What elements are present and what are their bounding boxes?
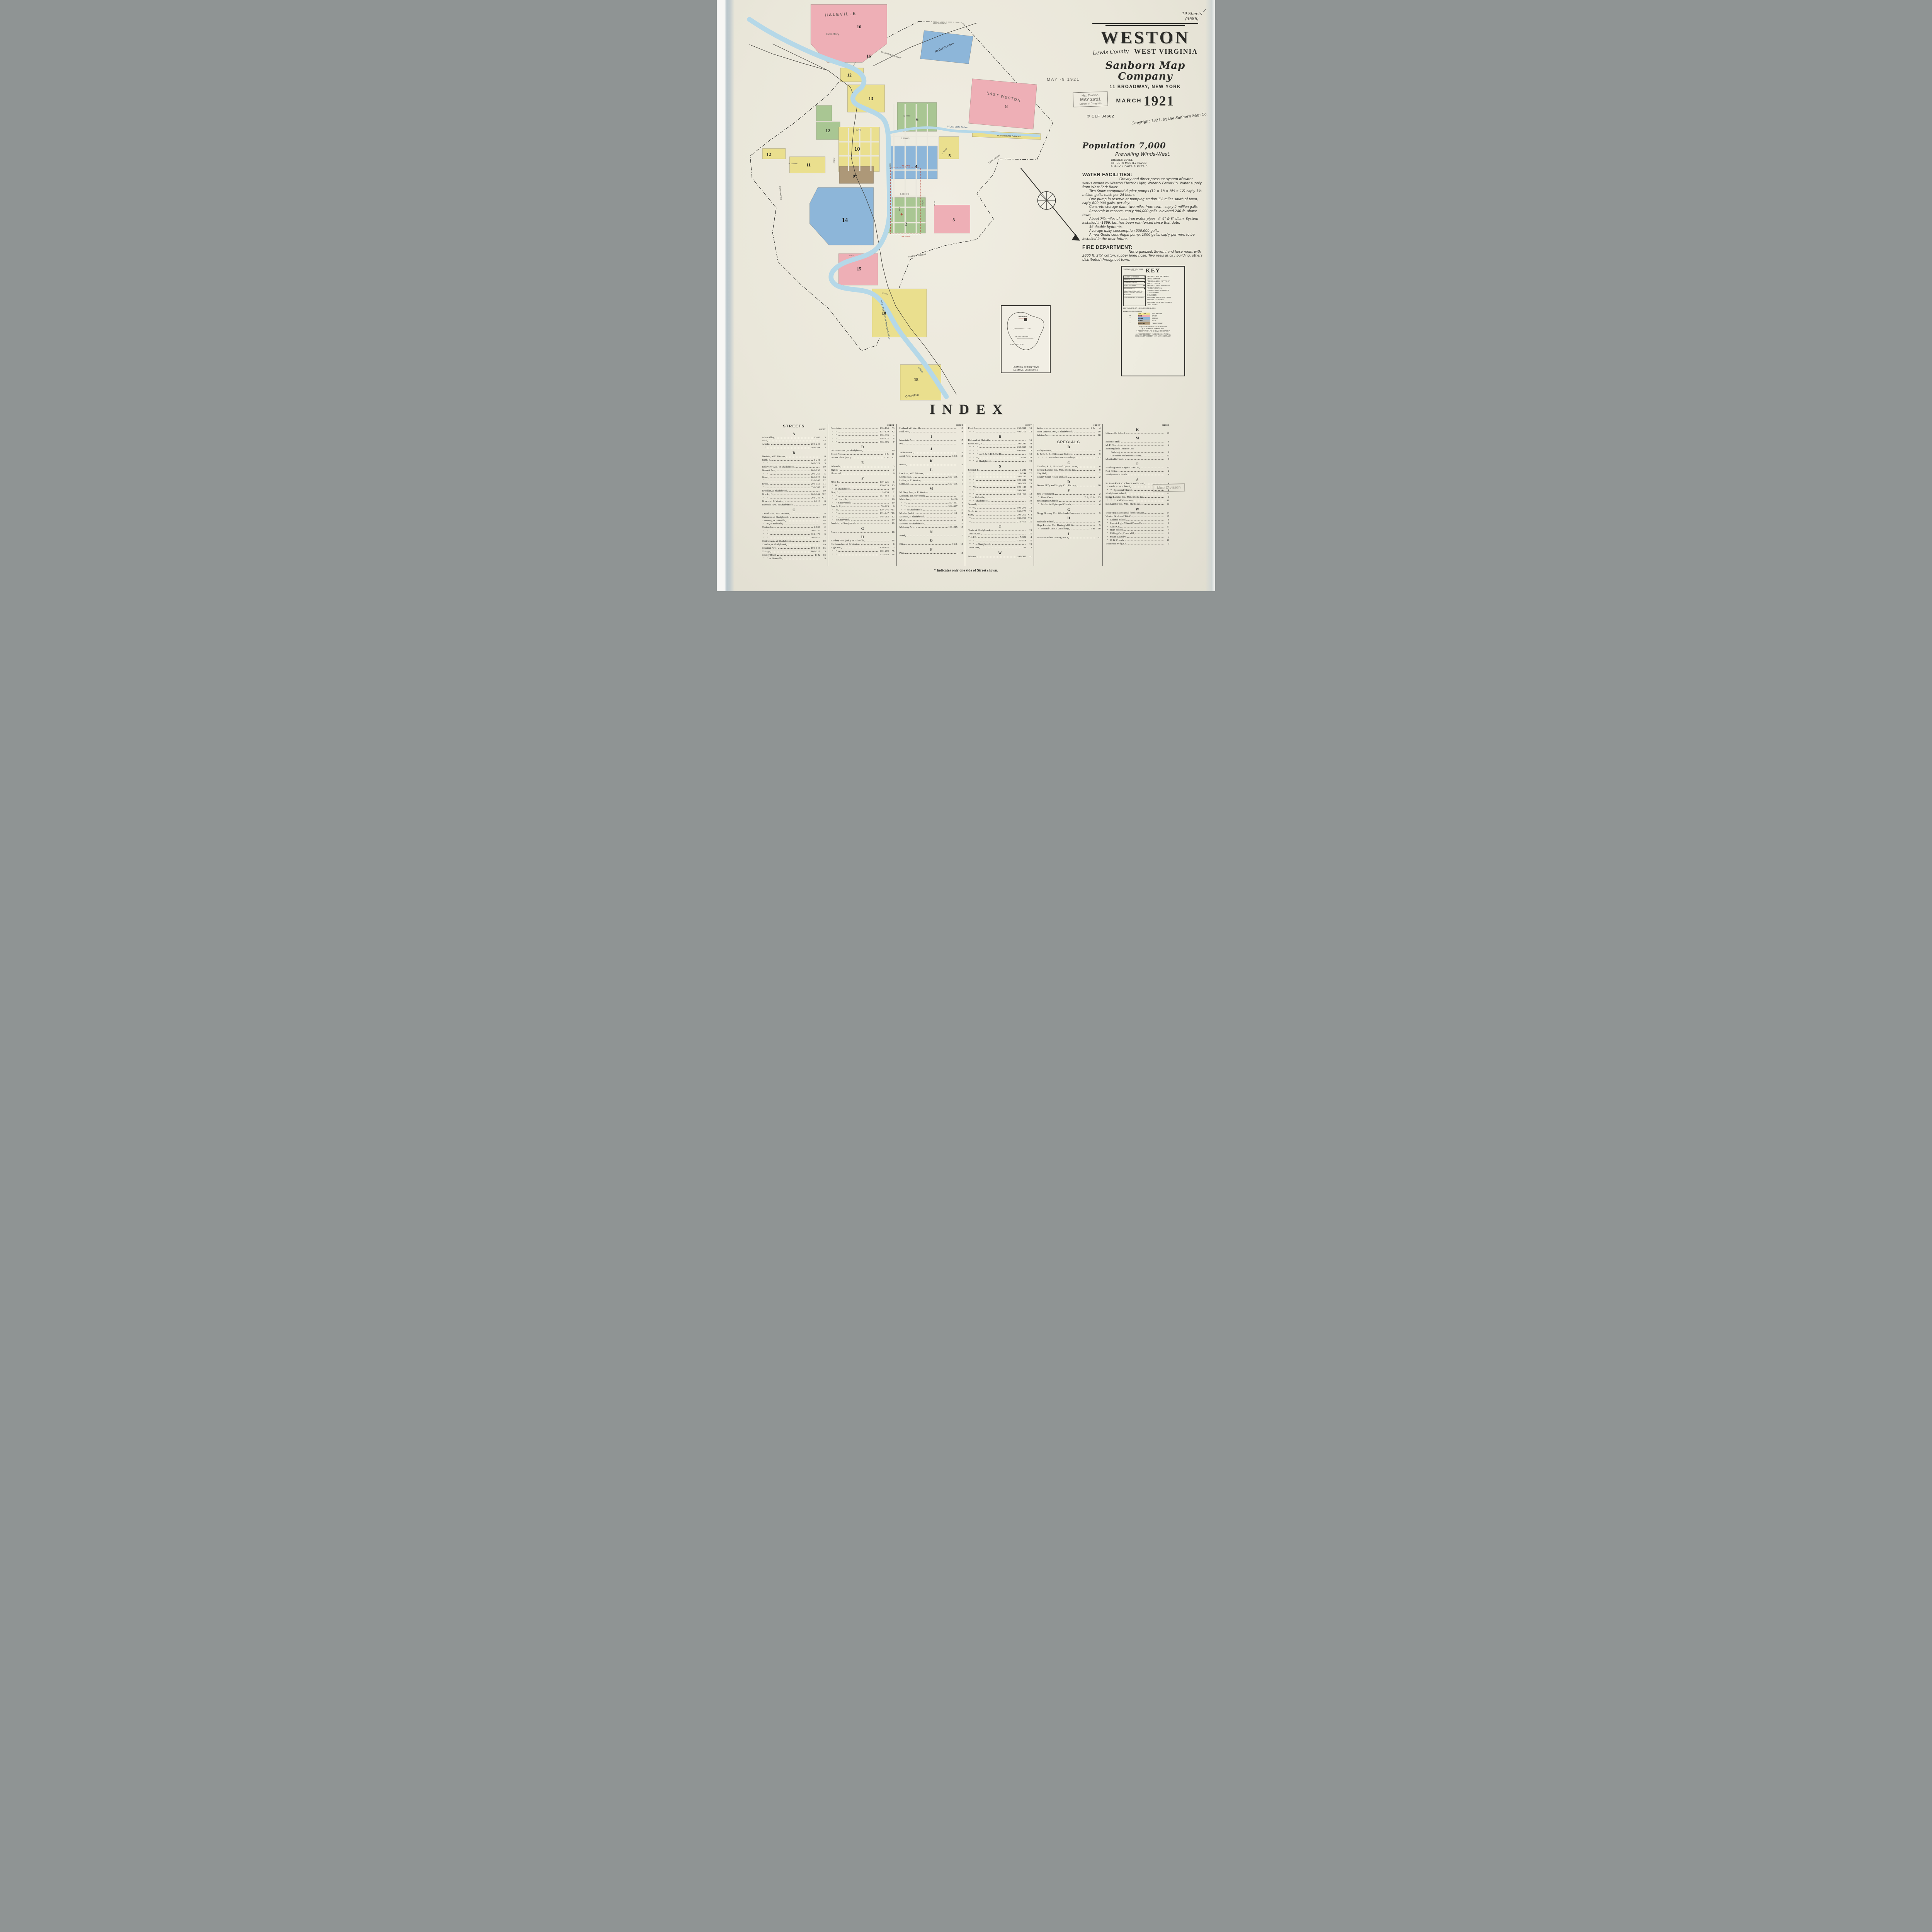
entry-name: Shadybrook School,	[1105, 492, 1126, 496]
index-entry: Lynn Ave.,600–675 7	[900, 483, 963, 486]
dotted-leader	[1074, 454, 1095, 455]
map-division-stamp: Map Division	[1153, 483, 1185, 492]
entry-name: Banister, at E. Weston,	[762, 455, 786, 459]
dotted-leader	[980, 548, 1021, 548]
dotted-leader	[1142, 456, 1163, 456]
entry-name: Bailey House,	[1037, 449, 1051, 453]
entry-sheet-number: 18	[958, 442, 963, 446]
index-entry: Third E.,7–324 4	[968, 536, 1032, 539]
map-label: BLAND	[856, 129, 861, 131]
entry-sheet-number: 6	[1164, 440, 1169, 444]
index-entry: Seventh,7	[968, 503, 1032, 507]
entry-name: Masonic Hall,	[1105, 440, 1120, 444]
dotted-leader	[772, 460, 813, 461]
entry-name: West Virginia Hospital for the Insane,	[1105, 512, 1145, 515]
key-symbol-cell: STEAM BOILER▮	[1124, 287, 1145, 290]
entry-number-range: 12 &	[952, 455, 958, 458]
entry-number-range: 1–236	[882, 491, 889, 495]
entry-sheet-number: 2	[958, 498, 963, 502]
entry-name: “ Glass Co.,	[1105, 526, 1121, 529]
dotted-leader	[796, 467, 820, 468]
dotted-leader	[979, 512, 1016, 512]
map-label: CORPORATION	[933, 22, 947, 25]
entry-name: Court Ave.,	[831, 427, 843, 430]
entry-sheet-number: 17	[1164, 526, 1169, 529]
index-entry: Edwards,3	[831, 465, 895, 469]
key-color-legend: BUILDINGS COLORED YELLOWARE FRAME“ “REDB…	[1123, 310, 1183, 325]
index-entry: “ Hose Carts,7, 9, 13 & 15	[1037, 496, 1100, 500]
map-label: FIRE LIMITS	[901, 165, 910, 167]
key-symbol-cell: COUNTING FROM LEFT TO RIGHT LOOKING TOWA…	[1124, 290, 1145, 296]
entry-sheet-number: 12	[821, 486, 826, 490]
dotted-leader	[980, 458, 1020, 458]
entry-number-range: 101–247	[880, 512, 889, 515]
sheet-column-label: SHEET	[762, 429, 826, 431]
dotted-leader	[1145, 513, 1163, 514]
dotted-leader	[840, 493, 881, 493]
entry-sheet-number: 9	[1164, 543, 1169, 546]
index-entry: Bailey House,4	[1037, 449, 1100, 453]
dotted-leader	[984, 444, 1016, 444]
entry-number-range: 200–355	[811, 483, 821, 486]
index-entry: “ “325–514 5	[968, 539, 1032, 543]
edition-month: MARCH	[1116, 97, 1142, 104]
index-entry: “ W.,100–185 9	[968, 486, 1032, 489]
dotted-leader	[769, 464, 810, 464]
sheet-column-label: SHEET	[1105, 425, 1169, 427]
water-facilities-heading: WATER FACILITIES:	[1082, 172, 1204, 177]
entry-name: Franklin, at Shadybrook,	[831, 522, 857, 526]
entry-name: Monongahela Traction Co.:	[1105, 447, 1134, 451]
index-entry: B. & O. R. R., Office and Stations,9	[1037, 453, 1100, 456]
dotted-leader	[1128, 544, 1163, 544]
index-section-letter: C	[1037, 461, 1100, 465]
entry-name: “ “	[831, 441, 837, 444]
dotted-leader	[774, 495, 810, 495]
dotted-leader	[1121, 527, 1163, 527]
key-color-rows: YELLOWARE FRAME“ “REDBRICK“ “BLUESTONE“ …	[1123, 313, 1183, 325]
entry-sheet-number: 3	[821, 446, 826, 450]
dotted-leader	[776, 438, 813, 438]
dotted-leader	[769, 531, 810, 531]
entry-number-range: 242–329	[811, 462, 821, 466]
index-entry: “ “ at Deanville,9	[762, 557, 826, 561]
dotted-leader	[906, 544, 951, 545]
index-entry: “ “200–361 11	[968, 489, 1032, 493]
index-section-letter: S	[968, 464, 1032, 468]
entry-name: Gregg Grocery Co., Wholesale Groceries,	[1037, 512, 1080, 515]
index-section-letter: K	[900, 459, 963, 463]
entry-number-range: 400–715	[1017, 430, 1027, 434]
dotted-leader	[979, 451, 1016, 451]
entry-sheet-number: 9	[1095, 453, 1100, 456]
sheet-number: 10	[854, 146, 860, 152]
dotted-leader	[843, 429, 879, 429]
index-entry: Hull Ave.,18	[900, 430, 963, 434]
entry-sheet-number: 11	[1164, 499, 1169, 503]
entry-sheet-number: *3	[1027, 479, 1032, 482]
key-footer-line: CONSECUTIVE STREET NO'S ARE ARBITRARY	[1123, 335, 1183, 337]
entry-number-range: 100–217	[811, 550, 821, 554]
index-entry: “ “ “250–363 10	[968, 446, 1032, 449]
entry-sheet-number: 11	[889, 453, 895, 456]
entry-sheet-number: 18	[958, 463, 963, 467]
index-entry: River Ave., N.,200–249 9	[968, 442, 1032, 446]
entry-sheet-number: 14	[1164, 512, 1169, 515]
map-label: E. FIFTH	[903, 115, 910, 117]
publisher-name: Sanborn Map Company	[1082, 60, 1208, 82]
entry-sheet-number: *4	[889, 553, 895, 557]
dotted-leader	[1127, 494, 1163, 494]
index-entry: Bland,100–125 10	[762, 476, 826, 480]
index-entry: Broad,200–355 11	[762, 483, 826, 486]
entry-sheet-number: 11	[821, 483, 826, 486]
index-entry: Kitsonville School,18	[1105, 432, 1169, 435]
index-entry: Monticello Hotel,9	[1105, 458, 1169, 461]
entry-sheet-number: 13	[1027, 449, 1032, 453]
entry-sheet-number: 12	[889, 515, 895, 519]
entry-number-range: 506–675	[811, 536, 821, 540]
index-entry: “ “336–475 6	[831, 437, 895, 441]
index-entry: “ “ at Shadybrook,19	[968, 460, 1032, 463]
entry-name: Brown, at E. Weston,	[762, 500, 784, 503]
entry-number-range: 212–415	[1017, 520, 1027, 524]
entry-sheet-number: 16	[1095, 520, 1100, 524]
dotted-leader	[789, 491, 820, 492]
index-entry: Building,4	[1105, 451, 1169, 454]
entry-name: Harding Ave. (arb.), at Haleville,	[831, 539, 865, 543]
index-entry: Presbyterian Church,4	[1105, 473, 1169, 477]
entry-name: “ “ “ Oil Warehouse,	[1105, 499, 1133, 503]
entry-sheet-number: 4	[1164, 444, 1169, 447]
index-entry: “201–211 *15	[968, 517, 1032, 520]
dotted-leader	[1070, 538, 1095, 538]
entry-name: County Road,	[762, 554, 776, 557]
index-entry: “ “200–265 5	[762, 473, 826, 476]
dotted-leader	[978, 537, 1019, 538]
entry-number-range: 400–835	[1017, 449, 1027, 453]
entry-sheet-number: 18	[1027, 456, 1032, 460]
entry-name: Interstate Ave.,	[900, 439, 915, 442]
dotted-leader	[793, 541, 820, 542]
entry-name: “ W.,	[831, 509, 839, 512]
index-section-letter: O	[900, 539, 963, 543]
dotted-leader	[1081, 514, 1095, 514]
entry-name: Arch,	[762, 439, 768, 443]
entry-sheet-number: 18	[958, 552, 963, 555]
map-label: E. SECOND	[900, 193, 910, 195]
entry-sheet-number: 19	[889, 502, 895, 505]
entry-number-range: 1–241	[813, 459, 820, 462]
index-entry: Brown, at E. Weston,1–210 8	[762, 500, 826, 503]
entry-name: B. & O. R. R., Office and Stations,	[1037, 453, 1073, 456]
entry-sheet-number: 4	[821, 529, 826, 533]
entry-sheet-number: 9	[1095, 469, 1100, 472]
entry-number-range: 200–270	[880, 550, 889, 553]
key-stable-note: ⊠ STABLE (C.B.) = CONCRETE BLOCK	[1123, 307, 1183, 310]
index-column-3: SHEETHolland, at Haleville,16Hull Ave.,1…	[896, 424, 965, 566]
index-entry: Jackson Ave.,18	[900, 451, 963, 455]
entry-sheet-number: 7	[1027, 503, 1032, 507]
entry-name: Presbyterian Church,	[1105, 473, 1127, 477]
entry-name: Minden (arb.),	[900, 512, 915, 515]
publisher-address: 11 BROADWAY, NEW YORK	[1082, 85, 1208, 89]
entry-name: “ “	[968, 479, 974, 482]
entry-number-range: 100–275	[1017, 507, 1027, 510]
index-entry: City Hall,2	[1037, 472, 1100, 476]
entry-name: Minnich, at Shadybrook,	[900, 515, 925, 519]
entry-sheet-number: 19	[889, 522, 895, 526]
entry-sheet-number: 5	[1095, 524, 1100, 527]
entry-number-range: 9 &	[885, 453, 889, 456]
sheets-note: 19 Sheets (3686) ✓	[1182, 12, 1202, 22]
index-column-2: SHEETCourt Ave.,100–164 *3 “ “101–179 *2…	[828, 424, 896, 566]
entry-sheet-number: 10	[1027, 427, 1032, 430]
index-entry: Second, E.,1–241 *4	[968, 469, 1032, 472]
dotted-leader	[767, 448, 810, 448]
dotted-leader	[1077, 470, 1095, 471]
entry-name: Seventh,	[968, 503, 977, 507]
entry-name: Alum Alley,	[762, 436, 775, 440]
index-entry: County Court House and Jail,2	[1037, 476, 1100, 479]
dotted-leader	[769, 538, 810, 538]
entry-number-range: 1–180	[951, 498, 958, 502]
entry-number-range: 10 &	[883, 456, 889, 460]
dotted-leader	[975, 494, 1016, 495]
index-entry: “ “101–247 *10	[831, 512, 895, 515]
entry-sheet-number: 4	[1164, 473, 1169, 477]
dotted-leader	[1119, 471, 1163, 472]
dotted-leader	[1143, 504, 1163, 505]
entry-sheet-number: 8	[958, 472, 963, 476]
entry-name: Kitson,	[900, 463, 907, 467]
entry-number-range: 201–211	[1017, 517, 1027, 520]
clf-number: © CLF 34662	[1087, 114, 1114, 119]
index-entry: “210–245 12	[762, 479, 826, 483]
index-entry: “ “200–270 *5	[831, 550, 895, 553]
entry-name: Madison, at Shadybrook,	[900, 495, 925, 498]
dotted-leader	[905, 553, 957, 554]
entry-name: Danser M'f'g and Supply Co., Factory,	[1037, 484, 1077, 488]
entry-name: Mulberry Ave.,	[900, 526, 915, 529]
index-section-letter: M	[900, 487, 963, 491]
sheet-number: (3686)	[1182, 17, 1202, 22]
entry-sheet-number: *15	[1027, 517, 1032, 520]
entry-sheet-number: 19	[821, 516, 826, 519]
dotted-leader	[770, 484, 810, 485]
dotted-leader	[842, 507, 880, 507]
entry-number-range: 200–244	[811, 493, 821, 497]
index-entry: Railroad, at Haleville,16	[968, 439, 1032, 442]
entry-name: City Hall,	[1037, 472, 1047, 476]
index-section-letter: P	[900, 548, 963, 551]
dotted-leader	[925, 524, 957, 524]
entry-number-range: 325–514	[1017, 539, 1027, 543]
index-column-6: SHEETKKitsonville School,18MMasonic Hall…	[1102, 424, 1171, 566]
dotted-leader	[912, 500, 950, 500]
entry-number-range: 50–85	[813, 436, 820, 440]
entry-sheet-number: 3	[889, 546, 895, 550]
index-entry: West Virginia Ave., at Shadybrook,19	[1037, 430, 1100, 434]
entry-sheet-number: 19	[889, 449, 895, 453]
entry-sheet-number: *5	[1027, 482, 1032, 486]
entry-sheet-number: 6	[889, 481, 895, 484]
dotted-leader	[1003, 454, 1026, 455]
entry-sheet-number: 4	[1027, 536, 1032, 539]
index-section-letter: H	[1037, 516, 1100, 520]
index-entry: Monroe, at Shadybrook,19	[900, 522, 963, 526]
index-entry: Haleville School,16	[1037, 520, 1100, 524]
index-entry: Charles, at Shadybrook,19	[762, 543, 826, 547]
dotted-leader	[1128, 475, 1163, 475]
dotted-leader	[769, 498, 810, 498]
sheet-number: 3	[952, 218, 955, 223]
entry-name: Eighth,	[831, 469, 838, 472]
index-entry: Holland, at Haleville,16	[900, 427, 963, 430]
entry-sheet-number: 8	[958, 479, 963, 483]
key-line: “ 2ND & 4TH “	[1147, 304, 1183, 306]
index-entry: Sixth, W.,100–275 13	[968, 510, 1032, 514]
dotted-leader	[852, 503, 889, 503]
index-entry: Delaware Ave., at Shadybrook,19	[831, 449, 895, 453]
index-section-letter: L	[900, 468, 963, 472]
entry-sheet-number: 5	[821, 473, 826, 476]
utility-note: GRADES LEVEL	[1111, 159, 1204, 162]
index-entry: “ “ “400–835 13	[968, 449, 1032, 453]
entry-name: “ “	[762, 533, 768, 536]
dotted-leader	[839, 486, 879, 486]
map-label: BALTIMORE & OHIO R.R.	[881, 51, 902, 60]
index-column-5: SHEETWater,2 & 4West Virginia Ave., at S…	[1034, 424, 1102, 566]
entry-name: “ at Shadybrook,	[831, 488, 851, 491]
entry-name: Detroit Place (arb.),	[831, 456, 851, 460]
index-entry: State,200–210 *14	[968, 514, 1032, 517]
sheet-number: 15	[857, 267, 861, 272]
entry-name: “ “	[900, 502, 906, 505]
index-entry: Bank, E.,1–241 2	[762, 459, 826, 462]
entry-name: Arnold,	[762, 443, 770, 446]
entry-sheet-number: 5	[1027, 539, 1032, 543]
entry-sheet-number: 13	[889, 484, 895, 488]
entry-sheet-number: 4	[1095, 503, 1100, 507]
entry-name: “ “	[968, 430, 974, 434]
entry-name: “ at Haleville,	[968, 496, 985, 500]
dotted-leader	[1074, 432, 1095, 432]
entry-sheet-number: 6	[889, 472, 895, 476]
index-entry: “ Colored School,6	[1105, 519, 1169, 522]
info-paragraph: Concrete storage dam, two miles from tow…	[1082, 205, 1204, 209]
district-sheet-3	[934, 205, 970, 233]
dotted-leader	[977, 487, 1016, 488]
entry-sheet-number: 11	[1164, 539, 1169, 543]
index-entry: Minden (arb.),11 & 12	[900, 512, 963, 515]
entry-name: Cemetery, at Haleville,	[762, 519, 786, 523]
dotted-leader	[926, 496, 957, 497]
map-label: COURT	[922, 200, 923, 206]
entry-name: “ “	[968, 482, 974, 486]
dotted-leader	[787, 521, 820, 521]
entry-name: Pratt Ave.,	[968, 427, 979, 430]
index-entry: Interstate Ave.,17	[900, 439, 963, 442]
dotted-leader	[986, 498, 1026, 498]
entry-name: Burnside Ave., at Shadybrook,	[762, 503, 794, 507]
dotted-leader	[857, 524, 888, 524]
index-entry: “ W.,100–275 13	[968, 507, 1032, 510]
entry-sheet-number: 17	[958, 439, 963, 442]
dotted-leader	[785, 502, 813, 502]
dotted-leader	[1143, 524, 1163, 524]
index-entry: Sun Lumber Co., Mill, Sheds, &c.,10	[1105, 503, 1169, 506]
dotted-leader	[906, 507, 948, 507]
entry-number-range: 336–475	[880, 437, 889, 441]
index-section-letter: G	[831, 527, 895, 531]
entry-sheet-number: 13	[1027, 510, 1032, 514]
dotted-leader	[776, 527, 813, 528]
entry-sheet-number: 3	[821, 550, 826, 554]
entry-sheet-number: 13	[1027, 507, 1032, 510]
index-entry: Warren,200–361 11	[968, 555, 1032, 559]
index-entry: County Road,17 & 18	[762, 554, 826, 557]
index-entry: Detroit Place (arb.),10 & 12	[831, 456, 895, 460]
entry-name: Bank, E.,	[762, 459, 772, 462]
sheets-count: 19 Sheets	[1182, 12, 1202, 17]
entry-number-range: 200–330	[811, 529, 821, 533]
entry-name: “ Paul's A. M. Church,	[1105, 485, 1131, 489]
key-cell-label: SHINGLE ROOF	[1124, 279, 1135, 281]
index-entry: “ “242–329 3	[762, 462, 826, 466]
dotted-leader	[1134, 501, 1163, 501]
entry-name: State,	[968, 514, 974, 517]
dotted-leader	[838, 432, 879, 432]
entry-number-range: 201–263	[880, 553, 889, 557]
dotted-leader	[971, 519, 1017, 519]
index-entry: “ “201–245 *11	[762, 497, 826, 500]
entry-name: Belleview Ave., at Shadybrook,	[762, 466, 795, 469]
sheet-column-label: SHEET	[831, 425, 895, 427]
entry-name: “ Hose Carts,	[1037, 496, 1053, 500]
dotted-leader	[1126, 434, 1163, 434]
dotted-leader	[838, 514, 879, 514]
index-entry: “ ElectricLight,Water&PowerCo.2	[1105, 522, 1169, 526]
dotted-leader	[866, 541, 889, 541]
entry-name: Post Office,	[1105, 470, 1118, 473]
entry-sheet-number: 19	[821, 543, 826, 547]
entry-name: Winter Ave.,	[1037, 434, 1050, 437]
entry-number-range: 100–215	[948, 526, 958, 529]
entry-sheet-number: 19	[1027, 543, 1032, 546]
entry-name: “ “ S.,	[968, 456, 979, 460]
entry-name: “	[762, 479, 764, 483]
entry-number-range: 100–246	[880, 509, 889, 512]
entry-sheet-number: 19	[1164, 454, 1169, 458]
index-entry: “ “201–263 *4	[831, 553, 895, 557]
index-entry: Loftus, at E. Weston,8	[900, 479, 963, 483]
entry-name: Cottage,	[762, 550, 770, 554]
entry-name: “ “	[831, 434, 837, 437]
water-facilities-text: Gravity and direct pressure system of wa…	[1082, 177, 1204, 241]
index-entry: “ Natural Gas Co., Buildings,9 & 10	[1037, 527, 1100, 531]
dotted-leader	[1078, 467, 1095, 467]
entry-name: Pike,	[900, 552, 905, 555]
entry-name: Brooks, E.,	[762, 493, 774, 497]
entry-number-range: 600–675	[948, 476, 958, 479]
index-entry: Tenth, at Shadybrook,19	[968, 529, 1032, 532]
index-section-letter: I	[1037, 532, 1100, 536]
entry-name: Chestnut Ave.,	[762, 547, 777, 550]
dotted-leader	[1124, 530, 1163, 531]
dotted-leader	[975, 480, 1016, 481]
entry-sheet-number: 16	[1027, 496, 1032, 500]
